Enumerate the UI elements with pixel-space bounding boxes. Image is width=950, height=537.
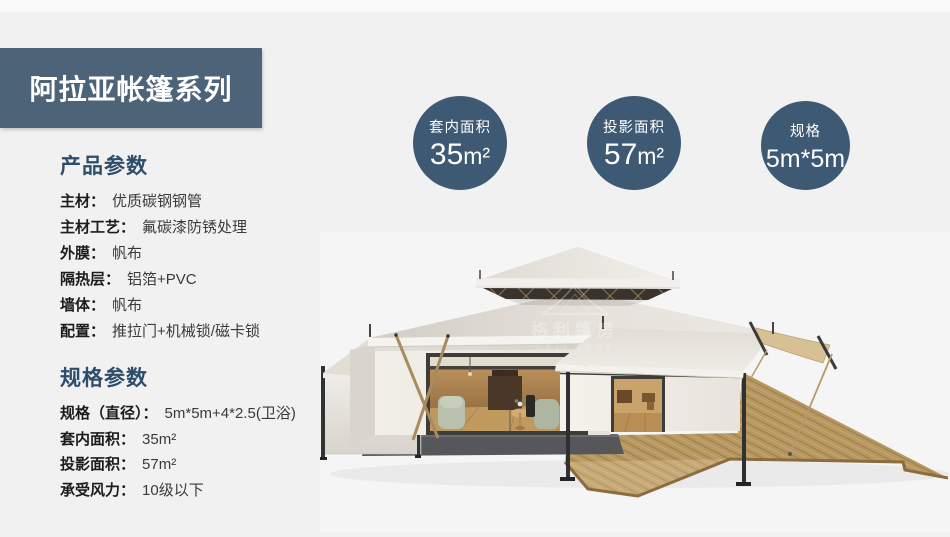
interior-chair: [647, 402, 654, 410]
interior-desk: [642, 393, 655, 402]
tent-render-image: 格利篷房 GELI TENT: [320, 232, 950, 532]
watermark-text-en: GELI TENT: [535, 342, 615, 352]
series-title-banner: 阿拉亚帐篷系列: [0, 48, 262, 128]
product-params-heading: 产品参数: [60, 150, 370, 180]
page-top-strip: [0, 0, 950, 12]
series-title: 阿拉亚帐篷系列: [29, 68, 232, 108]
badge-projection-area: 投影面积 57m²: [587, 96, 681, 190]
doorway: [611, 376, 665, 432]
annex-wall: [560, 370, 740, 432]
interior-cabinet: [617, 390, 632, 403]
badge-interior-area: 套内面积 35m²: [413, 96, 507, 190]
watermark-text-cn: 格利篷房: [531, 320, 619, 340]
interior-dark-object: [526, 395, 535, 417]
badge-size: 规格 5m*5m: [761, 101, 850, 190]
interior-armchair-right: [534, 399, 559, 429]
interior-piano: [488, 376, 522, 410]
param-row: 主材：优质碳钢钢管: [60, 189, 370, 215]
interior-piano-lid: [492, 370, 518, 376]
tent-illustration: 格利篷房 GELI TENT: [320, 232, 950, 532]
